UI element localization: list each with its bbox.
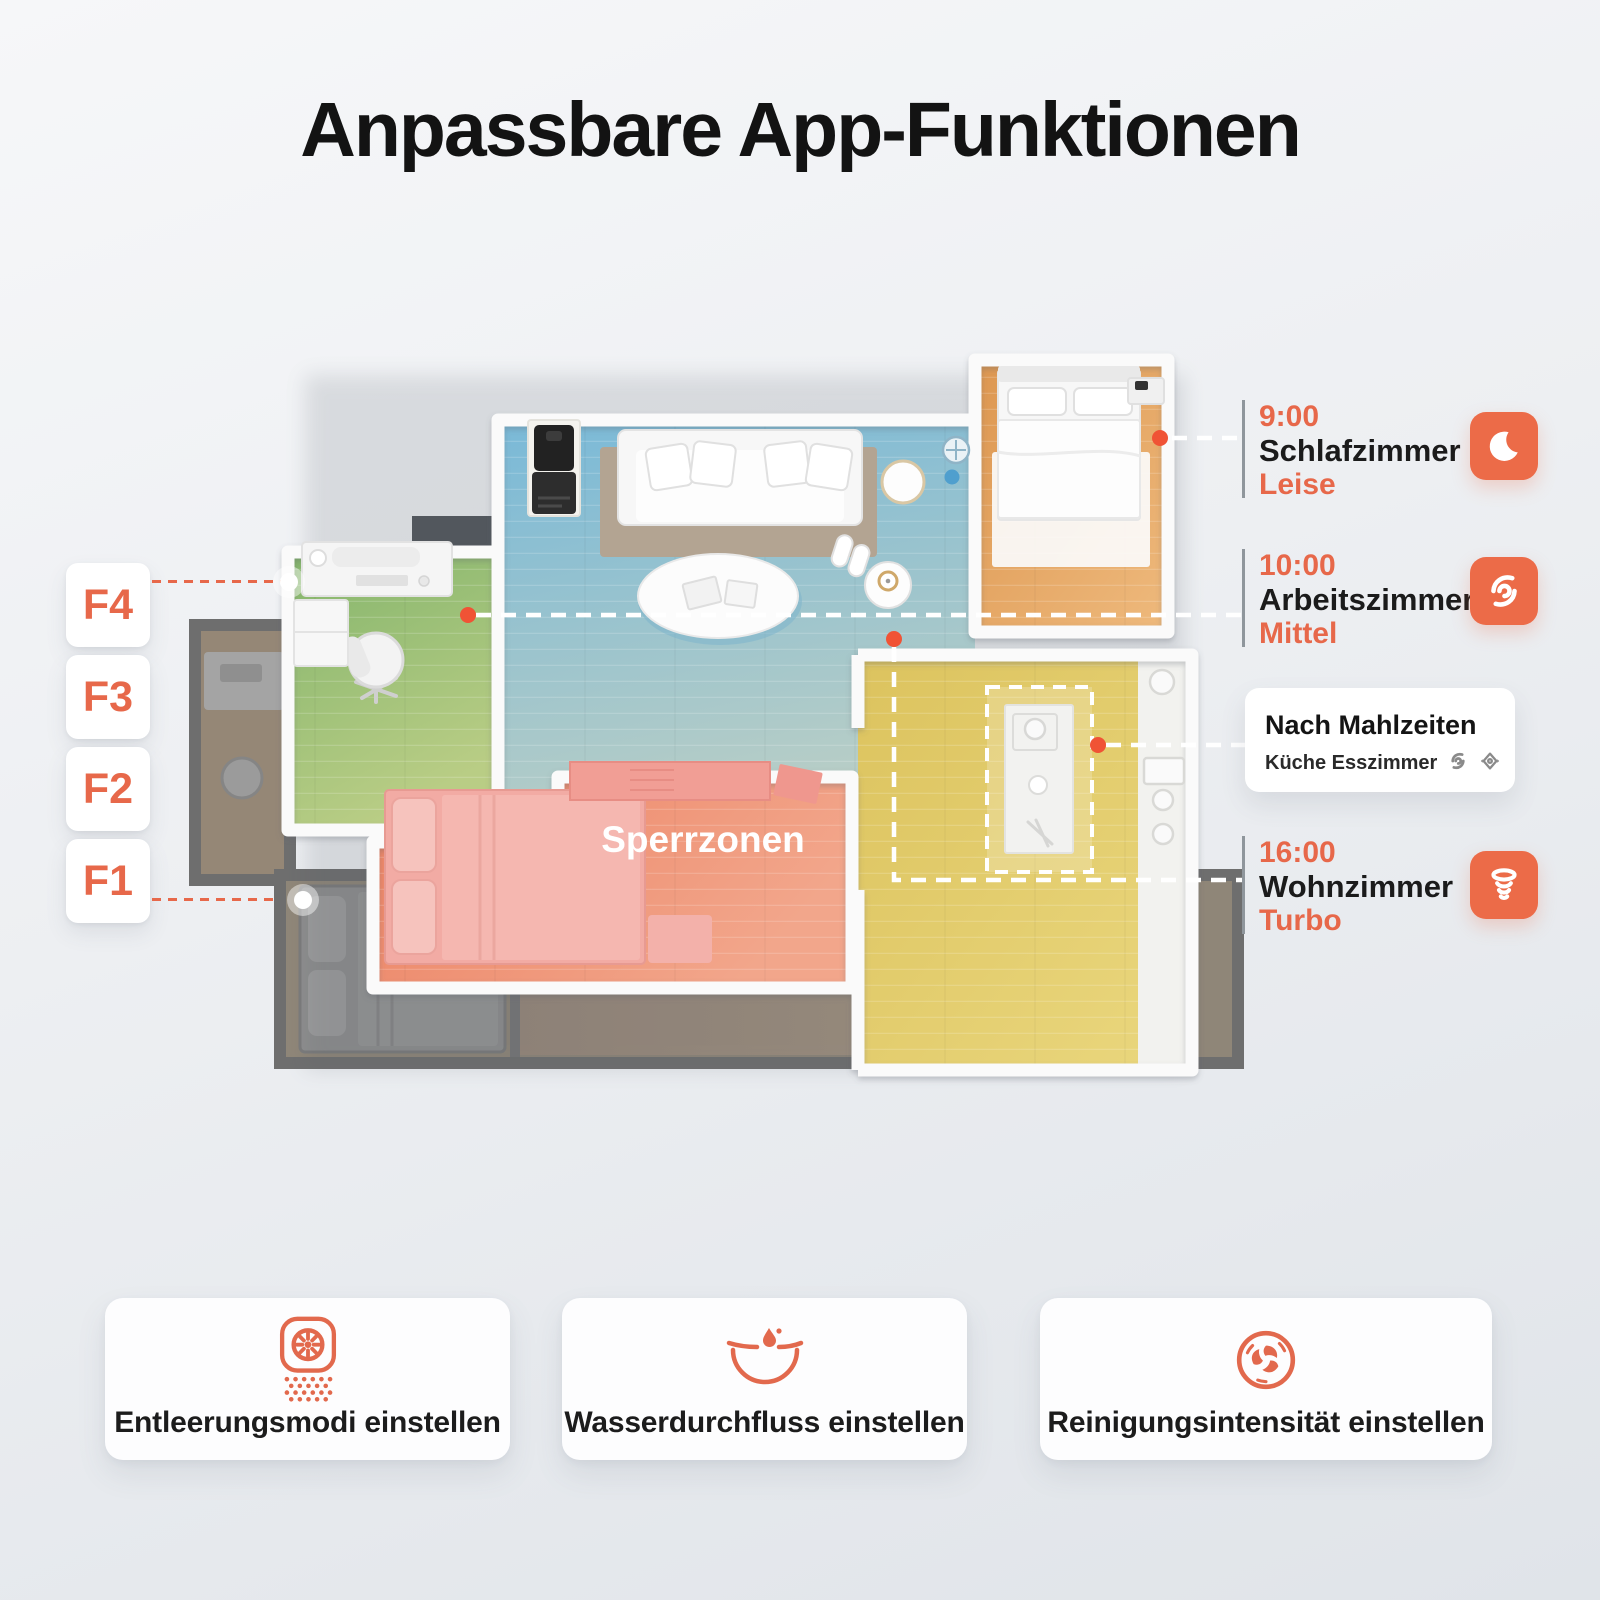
floor-chip-label: F3 (83, 673, 133, 722)
meal-schedule-card: Nach Mahlzeiten Küche Esszimmer (1245, 688, 1515, 792)
schedule-mode: Turbo (1259, 904, 1453, 938)
schedule-time: 16:00 (1259, 836, 1453, 870)
water-flow-icon (721, 1314, 809, 1406)
meal-card-title: Nach Mahlzeiten (1265, 710, 1515, 740)
pink-bench (648, 915, 712, 963)
kitchen-island (1005, 705, 1073, 853)
schedule-callout-livingroom: 16:00 Wohnzimmer Turbo (1242, 836, 1453, 938)
kitchen-counter-strip (1138, 660, 1186, 1064)
fan-swirl-icon (1447, 750, 1469, 777)
schedule-callout-bedroom: 9:00 Schlafzimmer Leise (1242, 400, 1461, 502)
floor-chip-f1: F1 (66, 839, 150, 923)
floor-chip-f2: F2 (66, 747, 150, 831)
schedule-room: Schlafzimmer (1259, 434, 1461, 468)
bed (998, 366, 1140, 520)
pink-bed (385, 790, 645, 964)
feature-card-label: Reinigungsintensität einstellen (1047, 1406, 1484, 1440)
coffee-table (638, 554, 802, 645)
feature-card-label: Wasserdurchfluss einstellen (564, 1406, 964, 1440)
schedule-mode: Mittel (1259, 617, 1474, 651)
schedule-room: Wohnzimmer (1259, 870, 1453, 904)
schedule-room: Arbeitszimmer (1259, 583, 1474, 617)
gray-desk-monitor (220, 664, 262, 682)
sofa (618, 430, 862, 525)
sperrzonen-label: Sperrzonen (601, 819, 805, 860)
feature-card-empty-modes: Entleerungsmodi einstellen (105, 1298, 510, 1460)
fan-swirl-icon (1470, 557, 1538, 625)
gray-chair (222, 758, 262, 798)
floor-chip-label: F2 (83, 765, 133, 814)
feature-card-label: Entleerungsmodi einstellen (114, 1406, 501, 1440)
floor-plan: Sperrzonen (180, 330, 1245, 1140)
schedule-callout-office: 10:00 Arbeitszimmer Mittel (1242, 549, 1474, 651)
auto-empty-icon (272, 1314, 344, 1406)
schedule-time: 10:00 (1259, 549, 1474, 583)
floor-chip-label: F4 (83, 581, 133, 630)
floor-chip-f4: F4 (66, 563, 150, 647)
schedule-time: 9:00 (1259, 400, 1461, 434)
feature-card-water-flow: Wasserdurchfluss einstellen (562, 1298, 967, 1460)
meal-card-rooms: Küche Esszimmer (1265, 752, 1437, 775)
dock-station (528, 420, 580, 516)
page-title: Anpassbare App-Funktionen (0, 86, 1600, 175)
moon-icon (1470, 412, 1538, 480)
floor-chip-f3: F3 (66, 655, 150, 739)
floor-chip-label: F1 (83, 857, 133, 906)
robot-vacuum (865, 562, 911, 608)
mop-icon (1479, 750, 1501, 777)
cleaning-intensity-icon (1233, 1314, 1299, 1406)
side-table (882, 461, 924, 503)
bedroom-furniture (992, 366, 1164, 567)
schedule-mode: Leise (1259, 468, 1461, 502)
tornado-icon (1470, 851, 1538, 919)
feature-card-cleaning-intensity: Reinigungsintensität einstellen (1040, 1298, 1492, 1460)
